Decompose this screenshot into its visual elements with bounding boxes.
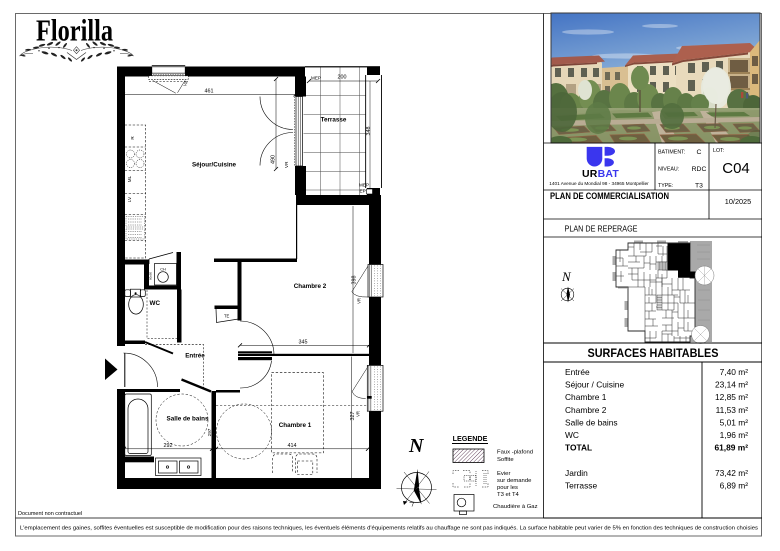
svg-text:Chambre 1: Chambre 1: [279, 422, 312, 429]
svg-text:7,40 m²: 7,40 m²: [720, 367, 749, 377]
svg-text:Evier: Evier: [497, 471, 510, 477]
svg-text:T3 et T4: T3 et T4: [497, 492, 520, 498]
svg-text:Entrée: Entrée: [565, 367, 590, 377]
svg-text:R: R: [130, 136, 135, 140]
svg-text:pour les: pour les: [497, 485, 518, 491]
svg-text:Chambre 2: Chambre 2: [294, 283, 327, 290]
svg-text:292: 292: [164, 443, 173, 449]
svg-text:345: 345: [299, 340, 308, 346]
svg-text:Séjour/Cuisine: Séjour/Cuisine: [192, 162, 237, 169]
svg-text:SURFACES HABITABLES: SURFACES HABITABLES: [588, 348, 719, 360]
svg-text:T3: T3: [695, 183, 703, 190]
svg-text:297: 297: [207, 428, 212, 436]
svg-text:61,89 m²: 61,89 m²: [714, 443, 748, 453]
svg-text:73,42 m²: 73,42 m²: [715, 468, 748, 478]
svg-text:RDC: RDC: [692, 166, 707, 173]
svg-text:1,96 m²: 1,96 m²: [720, 430, 749, 440]
svg-text:Jardin: Jardin: [565, 468, 588, 478]
svg-text:WC: WC: [150, 300, 161, 307]
svg-text:Soffite: Soffite: [497, 457, 514, 463]
svg-text:TOTAL: TOTAL: [565, 443, 592, 453]
svg-text:C04: C04: [722, 160, 750, 177]
svg-text:10/2025: 10/2025: [725, 197, 751, 206]
svg-text:1401 Avenue du Mondial 98 - 34: 1401 Avenue du Mondial 98 - 34965 Montpe…: [549, 181, 649, 186]
svg-text:Terrasse: Terrasse: [321, 117, 347, 124]
svg-text:MEP: MEP: [311, 76, 321, 81]
svg-text:EP: EP: [360, 189, 366, 194]
svg-text:Terrasse: Terrasse: [565, 480, 597, 490]
svg-text:TE: TE: [224, 314, 230, 319]
svg-text:WC: WC: [565, 430, 579, 440]
svg-text:CH: CH: [160, 267, 166, 272]
svg-text:VR: VR: [355, 411, 360, 417]
svg-text:348: 348: [366, 127, 372, 136]
svg-text:Chambre 2: Chambre 2: [565, 405, 607, 415]
svg-text:Entrée: Entrée: [185, 353, 205, 360]
svg-text:LOT:: LOT:: [713, 148, 724, 154]
svg-text:N: N: [561, 269, 572, 284]
svg-text:URBAT: URBAT: [582, 168, 619, 180]
svg-text:Salle de bains: Salle de bains: [565, 417, 618, 427]
svg-text:sur demande: sur demande: [497, 478, 532, 484]
svg-text:LEGENDE: LEGENDE: [453, 434, 488, 443]
svg-text:TYPE:: TYPE:: [658, 183, 673, 189]
svg-text:Document non contractuel: Document non contractuel: [18, 511, 82, 517]
svg-text:398: 398: [352, 276, 358, 285]
svg-text:Séjour / Cuisine: Séjour / Cuisine: [565, 380, 624, 390]
svg-text:VR: VR: [182, 80, 189, 87]
svg-text:200: 200: [338, 75, 347, 81]
svg-text:L'emplacement des gaines, soff: L'emplacement des gaines, soffites évent…: [20, 526, 758, 532]
svg-text:C: C: [697, 149, 702, 156]
svg-text:5,01 m²: 5,01 m²: [720, 417, 749, 427]
svg-text:ML: ML: [127, 175, 132, 182]
svg-text:BATIMENT:: BATIMENT:: [658, 150, 685, 156]
svg-text:Chambre 1: Chambre 1: [565, 392, 607, 402]
svg-text:11,53 m²: 11,53 m²: [716, 405, 749, 415]
svg-text:PLAN DE COMMERCIALISATION: PLAN DE COMMERCIALISATION: [550, 191, 669, 201]
svg-text:N: N: [408, 435, 425, 457]
svg-text:VR: VR: [356, 298, 361, 304]
svg-text:23,14 m²: 23,14 m²: [715, 380, 748, 390]
svg-text:VR: VR: [284, 161, 289, 168]
svg-text:414: 414: [288, 443, 297, 449]
svg-text:461: 461: [205, 89, 214, 95]
svg-text:Faux -plafond: Faux -plafond: [497, 450, 533, 456]
svg-text:12,85 m²: 12,85 m²: [715, 392, 748, 402]
svg-text:60x60: 60x60: [149, 272, 153, 281]
svg-text:MEP: MEP: [359, 183, 369, 188]
svg-text:LV: LV: [127, 196, 132, 202]
svg-text:NIVEAU:: NIVEAU:: [658, 167, 679, 173]
svg-text:490: 490: [271, 155, 277, 164]
svg-text:Chaudière à Gaz: Chaudière à Gaz: [493, 504, 538, 510]
svg-text:PLAN DE REPERAGE: PLAN DE REPERAGE: [565, 225, 638, 234]
svg-text:Salle de bains: Salle de bains: [167, 416, 209, 423]
svg-text:6,89 m²: 6,89 m²: [720, 480, 749, 490]
